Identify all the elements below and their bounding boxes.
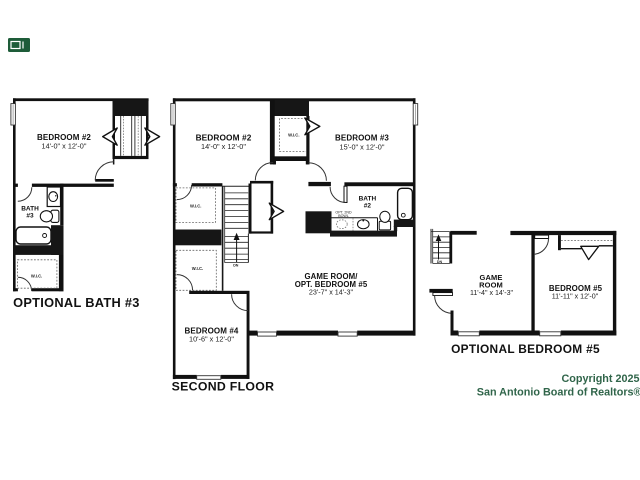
svg-text:#3: #3 [26, 213, 34, 220]
svg-text:BOWL: BOWL [338, 214, 349, 218]
svg-text:BATH: BATH [21, 206, 39, 213]
svg-text:OPTIONAL BATH #3: OPTIONAL BATH #3 [13, 295, 140, 310]
svg-text:W.I.C.: W.I.C. [190, 204, 201, 209]
svg-text:BATH: BATH [359, 195, 377, 202]
svg-text:SECOND FLOOR: SECOND FLOOR [172, 380, 275, 394]
svg-text:14'-0" x 12'-0": 14'-0" x 12'-0" [201, 142, 246, 151]
svg-text:Copyright 2025: Copyright 2025 [562, 373, 640, 385]
svg-text:14'-0" x 12'-0": 14'-0" x 12'-0" [42, 142, 87, 151]
svg-text:BEDROOM #3: BEDROOM #3 [335, 133, 389, 142]
svg-text:15'-0" x 12'-0": 15'-0" x 12'-0" [340, 142, 385, 151]
svg-text:23'-7" x 14'-3": 23'-7" x 14'-3" [309, 287, 354, 296]
svg-text:11'-11" x 12'-0": 11'-11" x 12'-0" [552, 292, 599, 300]
svg-text:OPTIONAL BEDROOM #5: OPTIONAL BEDROOM #5 [451, 342, 600, 356]
svg-text:10'-6" x 12'-0": 10'-6" x 12'-0" [189, 335, 234, 344]
svg-text:DN: DN [437, 260, 443, 264]
svg-text:11'-4" x 14'-3": 11'-4" x 14'-3" [470, 289, 514, 297]
svg-text:W.I.C.: W.I.C. [192, 266, 203, 271]
svg-text:W.I.C.: W.I.C. [288, 133, 299, 138]
svg-text:W.I.C.: W.I.C. [31, 274, 42, 279]
svg-text:#2: #2 [364, 203, 372, 210]
svg-text:DN: DN [233, 263, 239, 267]
svg-text:San Antonio Board of Realtors®: San Antonio Board of Realtors® [477, 387, 640, 399]
svg-text:BEDROOM #2: BEDROOM #2 [196, 132, 252, 142]
